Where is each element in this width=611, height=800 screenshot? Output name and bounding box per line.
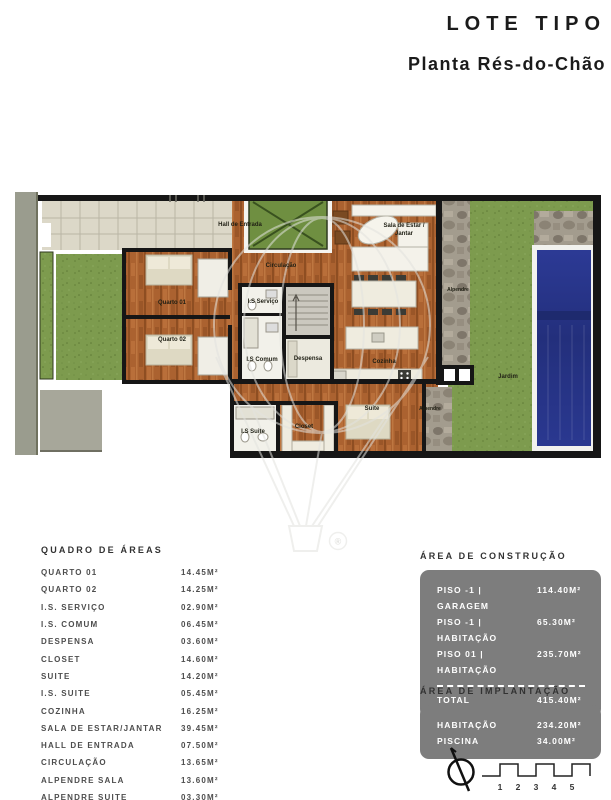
- construction-title: ÁREA DE CONSTRUÇÃO: [420, 551, 601, 561]
- area-row: I.S. COMUM06.45M²: [41, 616, 238, 633]
- area-row: ALPENDRE SALA13.60M²: [41, 772, 238, 789]
- label-is-comum: I.S Comum: [246, 357, 277, 363]
- scale-tick: 5: [570, 782, 575, 792]
- area-row: ALPENDRE SUITE03.30M²: [41, 789, 238, 800]
- scale-tick: 2: [516, 782, 521, 792]
- area-row: SALA DE ESTAR/JANTAR39.45M²: [41, 720, 238, 737]
- scale-bar-icon: 1 2 3 4 5: [482, 764, 590, 792]
- area-row: I.S. SUITE05.45M²: [41, 685, 238, 702]
- porch-alpendre-suite: [426, 387, 452, 453]
- label-alpendre-suite: Alpendre: [419, 406, 441, 412]
- page-title: LOTE TIPO: [408, 13, 606, 36]
- label-suite: Suite: [365, 406, 380, 412]
- area-row: DESPENSA03.60M²: [41, 633, 238, 650]
- label-cozinha: Cozinha: [372, 359, 396, 365]
- label-is-suite: I.S Suite: [241, 429, 265, 435]
- areas-table: QUADRO DE ÁREAS QUARTO 0114.45M² QUARTO …: [41, 545, 238, 800]
- label-circulacao: Circulação: [266, 263, 297, 269]
- area-row: COZINHA16.25M²: [41, 702, 238, 719]
- scale-tick: 1: [498, 782, 503, 792]
- area-row: QUARTO 0114.45M²: [41, 564, 238, 581]
- floor-plan-drawing: ® Hall de Entrada Circulação Sala de Est…: [0, 185, 611, 555]
- label-sala-line1: Sala de Estar /: [383, 223, 424, 229]
- construction-row: PISO -1 | HABITAÇÃO65.30M²: [437, 614, 591, 646]
- label-despensa: Despensa: [294, 356, 323, 362]
- label-quarto01: Quarto 01: [158, 300, 187, 306]
- label-alpendre-sala: Alpendre: [447, 287, 469, 293]
- page-subtitle: Planta Rés-do-Chão: [408, 54, 606, 75]
- area-row: I.S. SERVIÇO02.90M²: [41, 599, 238, 616]
- area-row: QUARTO 0214.25M²: [41, 581, 238, 598]
- label-hall: Hall de Entrada: [218, 222, 262, 228]
- construction-row: PISO 01 | HABITAÇÃO235.70M²: [437, 646, 591, 678]
- area-row: CLOSET14.60M²: [41, 650, 238, 667]
- pool-deck: [534, 211, 596, 249]
- pool-piscina: [532, 245, 596, 451]
- label-is-servico: I.S Serviço: [248, 299, 279, 305]
- street-strip: [15, 192, 38, 455]
- implantation-row: HABITAÇÃO234.20M²: [437, 717, 591, 733]
- label-sala-line2: Jantar: [395, 231, 414, 237]
- construction-row: PISO -1 | GARAGEM114.40M²: [437, 582, 591, 614]
- label-quarto02: Quarto 02: [158, 337, 187, 343]
- compass-and-scalebar: 1 2 3 4 5: [436, 742, 606, 800]
- area-row: HALL DE ENTRADA07.50M²: [41, 737, 238, 754]
- floor-plan: ® Hall de Entrada Circulação Sala de Est…: [0, 185, 611, 555]
- header: LOTE TIPO Planta Rés-do-Chão: [408, 13, 606, 75]
- north-arrow-icon: [449, 748, 474, 791]
- area-row: SUITE14.20M²: [41, 668, 238, 685]
- label-jardim: Jardim: [498, 374, 518, 380]
- page: LOTE TIPO Planta Rés-do-Chão: [0, 0, 611, 800]
- driveway-paving: [42, 201, 234, 250]
- implantation-title: ÁREA DE IMPLANTAÇÃO: [420, 686, 601, 696]
- area-row: CIRCULAÇÃO13.65M²: [41, 754, 238, 771]
- scale-tick: 3: [534, 782, 539, 792]
- registered-mark: ®: [335, 537, 342, 547]
- garden-left: [40, 252, 126, 452]
- porch-alpendre-sala: [442, 201, 470, 367]
- label-closet: Closet: [295, 424, 313, 430]
- scale-tick: 4: [552, 782, 557, 792]
- areas-table-title: QUADRO DE ÁREAS: [41, 545, 238, 555]
